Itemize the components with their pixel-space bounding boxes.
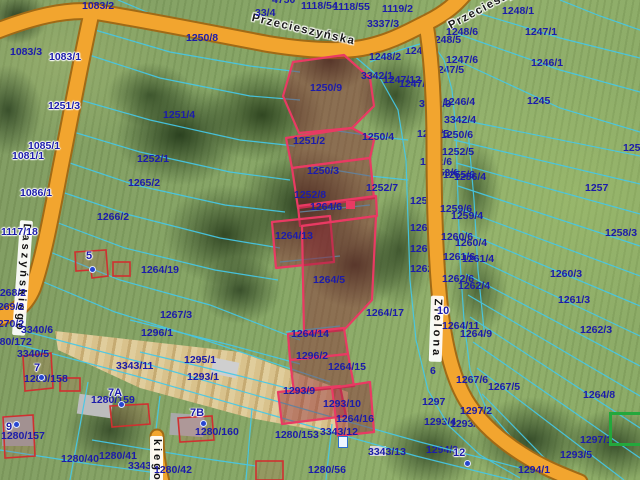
parcel-label-1266-2: 1266/2: [97, 212, 129, 223]
parcel-label-6: 6: [430, 366, 436, 377]
parcel-label-1261-3: 1261/3: [558, 295, 590, 306]
parcel-label-1280-172: 1280/172: [0, 337, 32, 348]
parcel-label-1280-160: 1280/160: [195, 427, 239, 438]
parcel-label-1267-6: 1267/6: [456, 375, 488, 386]
parcel-label-1252-5: 1252/5: [442, 147, 474, 158]
house-number-7: 7: [34, 363, 40, 374]
parcel-label-4750: 4750: [272, 0, 295, 6]
parcel-label-1264-17: 1264/17: [366, 308, 404, 319]
address-point-icon: [200, 420, 207, 427]
parcel-label-1251-2: 1251/2: [293, 136, 325, 147]
parcel-label-1252-8: 1252/8: [294, 190, 326, 201]
house-number-5: 5: [86, 251, 92, 262]
parcel-label-1264-13: 1264/13: [275, 231, 313, 242]
parcel-label-1083-2: 1083/2: [82, 1, 114, 12]
parcel-label-1246-4: 1246/4: [443, 97, 475, 108]
parcel-label-1264-5: 1264/5: [313, 275, 345, 286]
parcel-label-1262-3: 1262/3: [580, 325, 612, 336]
parcel-label-1246-1: 1246/1: [531, 58, 563, 69]
parcel-label-1118-55: 1118/55: [333, 2, 370, 13]
parcel-label-3343-11: 3343/11: [116, 361, 153, 372]
parcel-label-1245: 1245: [527, 96, 550, 107]
address-point-icon: [464, 460, 471, 467]
parcel-label-3340-6: 3340/6: [21, 325, 53, 336]
parcel-label-1256-4: 1256/4: [454, 172, 486, 183]
parcel-label-3342-4: 3342/4: [444, 115, 476, 126]
survey-marker-icon: [338, 436, 348, 448]
parcel-label-1293-5: 1293/5: [560, 450, 592, 461]
parcel-label-1293-1: 1293/1: [187, 372, 219, 383]
parcel-label-1250-4: 1250/4: [362, 132, 394, 143]
parcel-labels: 47501083/233/41118/541118/551119/21083/3…: [0, 0, 640, 480]
parcel-label-1280-158: 1280/158: [24, 374, 68, 385]
parcel-label-1264-6: 1264/6: [310, 202, 342, 213]
parcel-label-3343-13: 3343/13: [368, 447, 406, 458]
parcel-label-1247-1: 1247/1: [525, 27, 557, 38]
parcel-label-1248-2: 1248/2: [369, 52, 401, 63]
house-number-9: 9: [6, 422, 12, 433]
parcel-label-1294-1: 1294/1: [518, 465, 550, 476]
map-viewport[interactable]: 12481247/141248/51247/53342/31250/51252/…: [0, 0, 640, 480]
address-point-icon: [118, 401, 125, 408]
parcel-label-1252-7: 1252/7: [366, 183, 398, 194]
address-point-icon: [89, 266, 96, 273]
parcel-label-1264-9: 1264/9: [460, 329, 492, 340]
parcel-label-1248-6: 1248/6: [446, 27, 478, 38]
parcel-label-1250-9: 1250/9: [310, 83, 342, 94]
parcel-label-1297-1: 1297/1: [580, 435, 612, 446]
parcel-label-1265-2: 1265/2: [128, 178, 160, 189]
parcel-label-1293-9: 1293/9: [283, 386, 315, 397]
parcel-label-1247-6: 1247/6: [446, 55, 478, 66]
parcel-label-1262-4: 1262/4: [458, 281, 490, 292]
parcel-label-1264-16: 1264/16: [336, 414, 374, 425]
parcel-label-1296-1: 1296/1: [141, 328, 173, 339]
parcel-label-1267-3: 1267/3: [160, 310, 192, 321]
parcel-label-1251-4: 1251/4: [163, 110, 195, 121]
house-number-7B: 7B: [190, 408, 204, 419]
house-number-7A: 7A: [108, 388, 122, 399]
parcel-label-1250-8: 1250/8: [186, 33, 218, 44]
parcel-label-1280-40: 1280/40: [61, 454, 99, 465]
parcel-label-1247-12: 1247/12: [383, 75, 421, 86]
parcel-label-1259-4: 1259/4: [451, 211, 483, 222]
address-point-icon: [38, 374, 45, 381]
parcel-label-125: 125: [623, 143, 640, 154]
parcel-label-1260-4: 1260/4: [455, 238, 487, 249]
parcel-label-1258-3: 1258/3: [605, 228, 637, 239]
parcel-label-1248-1: 1248/1: [502, 6, 534, 17]
parcel-label-1264-8: 1264/8: [583, 390, 615, 401]
parcel-label-1252-1: 1252/1: [137, 154, 169, 165]
parcel-label-1280-56: 1280/56: [308, 465, 346, 476]
address-point-icon: [13, 421, 20, 428]
parcel-label-1260-3: 1260/3: [550, 269, 582, 280]
parcel-label-1296-2: 1296/2: [296, 351, 328, 362]
parcel-label-3337-3: 3337/3: [367, 19, 399, 30]
parcel-label-1086-1: 1086/1: [20, 188, 52, 199]
parcel-label-1280-153: 1280/153: [275, 430, 319, 441]
parcel-label-1269-2: 1269/2: [0, 302, 24, 313]
parcel-label-1264-19: 1264/19: [141, 265, 179, 276]
parcel-label-3340-5: 3340/5: [17, 349, 49, 360]
parcel-label-33-4: 33/4: [255, 8, 275, 19]
parcel-label-1083-3: 1083/3: [10, 47, 42, 58]
parcel-label-1264-14: 1264/14: [291, 329, 329, 340]
parcel-label-1264-15: 1264/15: [328, 362, 366, 373]
house-number-10: 10: [437, 306, 449, 317]
parcel-label-1250-3: 1250/3: [307, 166, 339, 177]
parcel-label-1083-1: 1083/1: [49, 52, 81, 63]
parcel-label-1117-18: 1117/18: [1, 227, 38, 238]
parcel-label-1257: 1257: [585, 183, 608, 194]
house-number-12: 12: [453, 448, 465, 459]
parcel-label-1250-6: 1250/6: [441, 130, 473, 141]
parcel-label-1267-5: 1267/5: [488, 382, 520, 393]
parcel-label-1297: 1297: [422, 397, 445, 408]
parcel-label-1280-41: 1280/41: [99, 451, 137, 462]
parcel-label-1081-1: 1081/1: [12, 151, 44, 162]
parcel-label-1293-10: 1293/10: [323, 399, 361, 410]
parcel-label-1268-2: 1268/2: [0, 288, 26, 299]
parcel-label-1119-2: 1119/2: [382, 4, 413, 15]
parcel-label-1295-1: 1295/1: [184, 355, 216, 366]
parcel-label-1251-3: 1251/3: [48, 101, 80, 112]
parcel-label-1280-42: 1280/42: [154, 465, 192, 476]
green-highlight-box[interactable]: [609, 412, 640, 446]
parcel-label-1297-2: 1297/2: [460, 406, 492, 417]
parcel-label-1261-4: 1261/4: [462, 254, 494, 265]
